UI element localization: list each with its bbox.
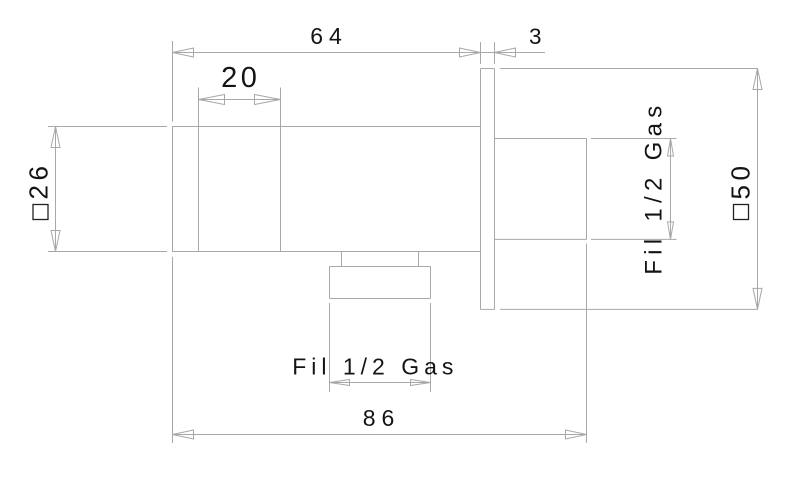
svg-text:26: 26 bbox=[24, 161, 54, 199]
svg-text:3: 3 bbox=[529, 24, 542, 49]
svg-text:20: 20 bbox=[221, 62, 260, 94]
svg-text:64: 64 bbox=[310, 23, 348, 49]
svg-text:86: 86 bbox=[363, 405, 401, 431]
svg-text:Fil 1/2 Gas: Fil 1/2 Gas bbox=[292, 354, 458, 380]
svg-text:Fil 1/2 Gas: Fil 1/2 Gas bbox=[641, 100, 668, 274]
svg-text:50: 50 bbox=[726, 161, 756, 199]
